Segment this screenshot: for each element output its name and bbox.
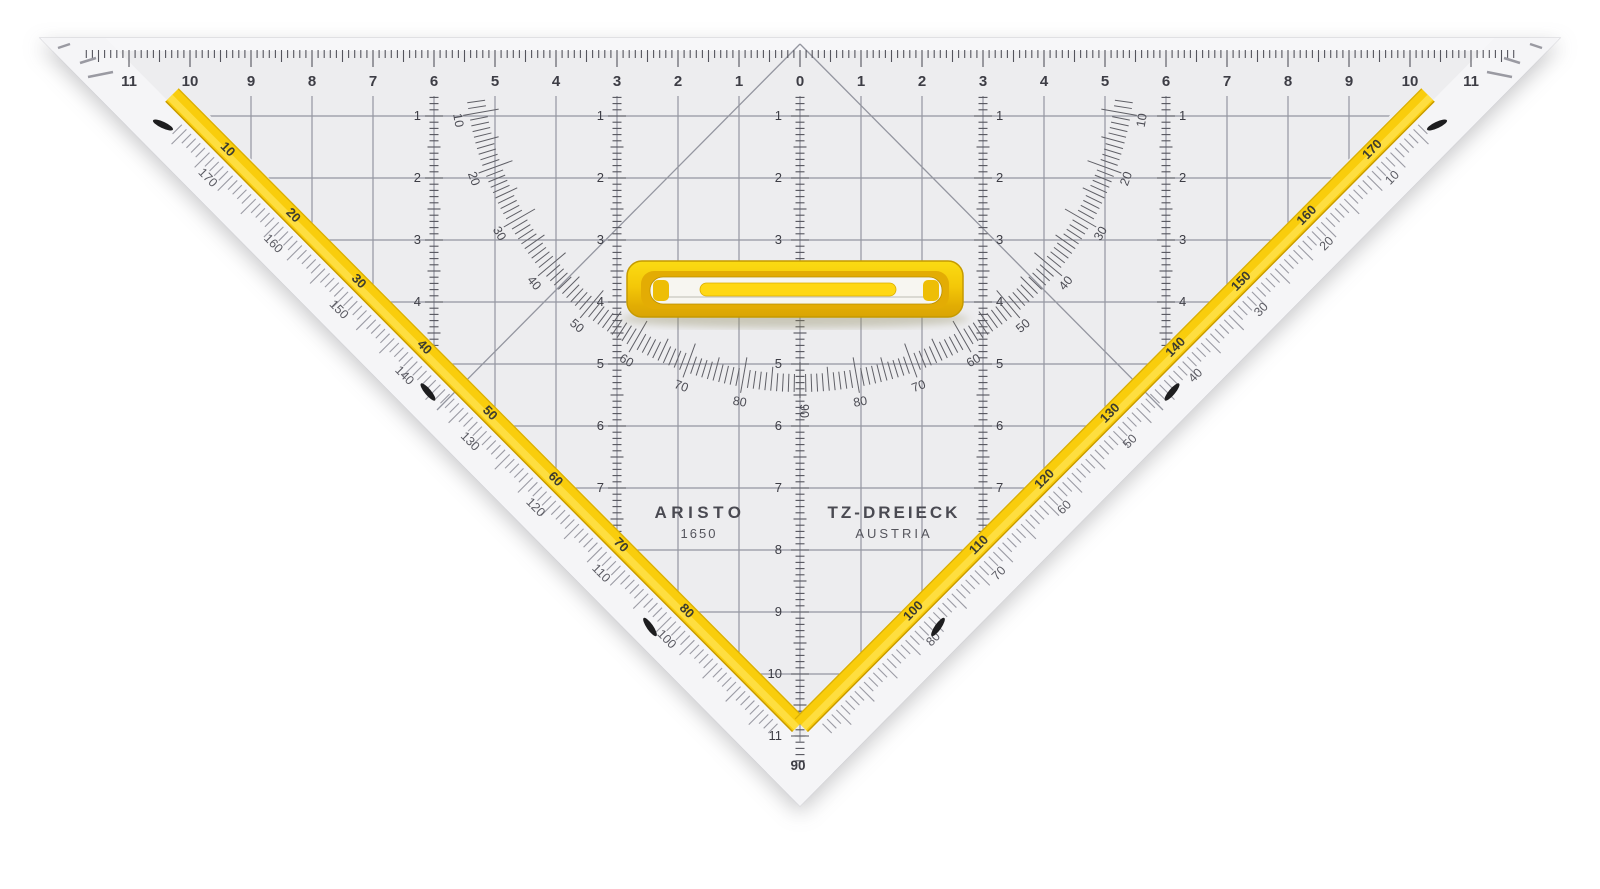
country-label: AUSTRIA [855,526,932,541]
arc-degree-label: 90 [797,404,811,418]
arc-degree-label: 80 [732,394,748,410]
tz-triangle-photo: 12345678910111234567123456712341234 1110… [0,0,1600,889]
left-outer-scale-number: 1 [414,108,421,123]
brand-name: ARISTO [655,503,746,522]
ruler-number: 2 [918,73,926,90]
right-inner-scale-number: 6 [996,418,1003,433]
ruler-number: 8 [1284,73,1292,90]
ruler-number: 6 [1162,73,1170,90]
right-outer-scale-number: 2 [1179,170,1186,185]
model-number: 1650 [681,526,718,541]
center-scale-number: 2 [775,170,782,185]
right-outer-scale-number: 1 [1179,108,1186,123]
left-outer-scale-number: 4 [414,294,421,309]
ruler-number: 11 [1463,73,1479,90]
center-scale-number: 9 [775,604,782,619]
handle-grip-bar [700,283,896,296]
apex-90-label: 90 [790,758,805,773]
ruler-number: 10 [1402,73,1419,90]
center-scale-number: 7 [775,480,782,495]
right-inner-scale-number: 3 [996,232,1003,247]
right-inner-scale-number: 5 [996,356,1003,371]
ruler-number: 0 [796,73,804,90]
handle [621,261,969,328]
ruler-number: 5 [1101,73,1109,90]
right-outer-scale-number: 3 [1179,232,1186,247]
arc-degree-label: 10 [1134,112,1150,128]
arc-tick [788,374,789,392]
center-scale-number: 8 [775,542,782,557]
left-inner-scale-number: 5 [597,356,604,371]
arc-degree-label: 10 [450,112,466,128]
ruler-number: 11 [121,73,137,90]
right-outer-scale-number: 4 [1179,294,1186,309]
left-outer-scale-number: 3 [414,232,421,247]
ruler-number: 9 [1345,73,1353,90]
ruler-number: 6 [430,73,438,90]
right-inner-scale-number: 1 [996,108,1003,123]
left-outer-scale-number: 2 [414,170,421,185]
left-inner-scale-number: 2 [597,170,604,185]
ruler-number: 1 [857,73,865,90]
ruler-number: 3 [979,73,987,90]
arc-degree-label: 80 [852,394,868,410]
center-scale-number: 3 [775,232,782,247]
ruler-number: 4 [552,73,561,90]
center-scale-number: 1 [775,108,782,123]
ruler-number: 7 [1223,73,1231,90]
right-inner-scale-number: 7 [996,480,1003,495]
ruler-number: 9 [247,73,255,90]
arc-tick [811,374,812,392]
left-inner-scale-number: 3 [597,232,604,247]
right-inner-scale-number: 2 [996,170,1003,185]
ruler-number: 8 [308,73,316,90]
center-scale-number: 10 [768,666,782,681]
ruler-number: 5 [491,73,499,90]
photo-of-drafting-triangle: 12345678910111234567123456712341234 1110… [0,0,1600,889]
ruler-number: 2 [674,73,682,90]
ruler-number: 3 [613,73,621,90]
ruler-number: 7 [369,73,377,90]
ruler-number: 10 [182,73,199,90]
left-inner-scale-number: 7 [597,480,604,495]
center-scale-number: 5 [775,356,782,371]
handle-hinge-left [653,280,669,301]
ruler-number: 1 [735,73,743,90]
left-inner-scale-number: 6 [597,418,604,433]
left-inner-scale-number: 1 [597,108,604,123]
product-name: TZ-DREIECK [828,503,961,522]
handle-hinge-right [923,280,939,301]
center-scale-number: 6 [775,418,782,433]
ruler-number: 4 [1040,73,1049,90]
